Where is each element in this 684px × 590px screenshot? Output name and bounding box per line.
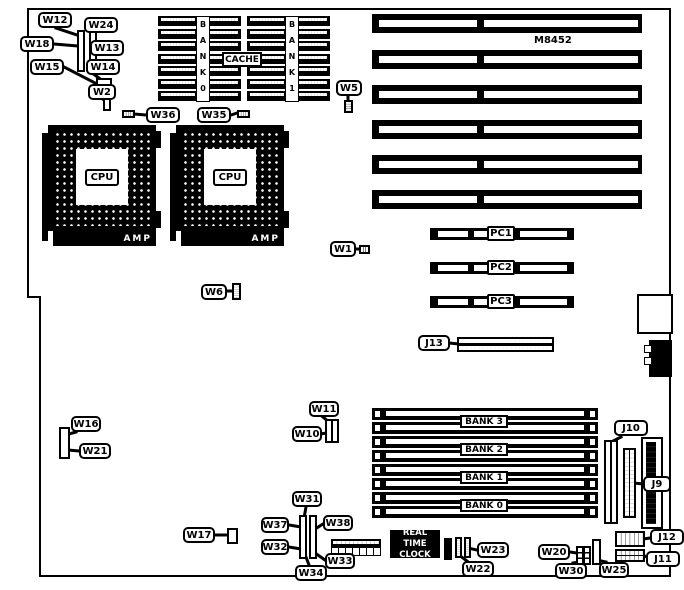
jumper-label-w13: W13 <box>90 40 124 56</box>
connector-j11 <box>615 549 645 562</box>
cpu-b-amp-bar: AMP <box>181 231 284 246</box>
connector-j13 <box>457 337 554 352</box>
cpu-socket-a-center: CPU <box>76 149 128 205</box>
cache-bank1-label: B A N K 1 <box>285 16 299 102</box>
bank-label-bank0: BANK 0 <box>460 499 508 512</box>
cpu-label: CPU <box>85 169 120 186</box>
cache-chip <box>158 91 198 101</box>
pc-slot-pc2: PC2 <box>430 262 574 274</box>
jumper-label-w10: W10 <box>292 426 322 442</box>
cpu-a-amp-bar: AMP <box>53 231 156 246</box>
pc2-label: PC2 <box>487 260 515 275</box>
jumper-block-w25 <box>592 539 601 565</box>
jumper-block-w10-w11 <box>325 419 339 443</box>
isa-slot-4 <box>372 120 642 139</box>
jumper-label-w24: W24 <box>84 17 118 33</box>
pc-slot-pc3: PC3 <box>430 296 574 308</box>
cpu-socket-b-center: CPU <box>204 149 256 205</box>
jumper-label-w36: W36 <box>146 107 180 123</box>
isa-slot-3 <box>372 85 642 104</box>
jumper-block-w31-group-left <box>299 515 307 559</box>
bank-label-bank3: BANK 3 <box>460 415 508 428</box>
isa-slot-5 <box>372 155 642 174</box>
jumper-label-w6: W6 <box>201 284 227 300</box>
jumper-block-w31-group-right <box>309 515 317 559</box>
isa-slot-1 <box>372 14 642 33</box>
jumper-label-w17: W17 <box>183 527 215 543</box>
jumper-block-w17 <box>227 528 238 544</box>
jumper-block-w5 <box>344 100 353 113</box>
cpu-b-tab-top <box>284 131 289 148</box>
cpu-socket-b: CPU <box>176 125 284 231</box>
cpu-socket-a: CPU <box>48 125 156 231</box>
jumper-label-w21: W21 <box>79 443 111 459</box>
jumper-label-w15: W15 <box>30 59 64 75</box>
connector-label-j13: J13 <box>418 335 450 351</box>
jumper-label-w32: W32 <box>261 539 289 555</box>
board-model-label: M8452 <box>534 35 572 46</box>
jumper-label-w2: W2 <box>88 84 116 100</box>
jumper-label-w35: W35 <box>197 107 231 123</box>
component-small <box>444 538 452 560</box>
connector-label-j11: J11 <box>646 551 680 567</box>
jumper-label-w33: W33 <box>325 553 355 569</box>
jumper-block-w22-w23-left <box>455 537 462 558</box>
connector-strip-top <box>331 539 381 547</box>
cache-chip <box>247 41 287 51</box>
connector-j9 <box>623 448 636 518</box>
jumper-label-w18: W18 <box>20 36 54 52</box>
pc-slot-pc1: PC1 <box>430 228 574 240</box>
bank-label-bank2: BANK 2 <box>460 443 508 456</box>
jumper-label-w30: W30 <box>555 563 587 579</box>
cache-chip <box>158 41 198 51</box>
jumper-label-w37: W37 <box>261 517 289 533</box>
jumper-block-w35 <box>237 110 250 118</box>
jumper-block-w16-w21 <box>59 427 70 459</box>
bank-label-bank1: BANK 1 <box>460 471 508 484</box>
jumper-label-w1: W1 <box>330 241 356 257</box>
rtc-chip: REAL TIME CLOCK <box>390 530 440 558</box>
jumper-label-w14: W14 <box>86 59 120 75</box>
jumper-label-w5: W5 <box>336 80 362 96</box>
cache-label: CACHE <box>222 52 262 67</box>
keyboard-connector-pin <box>644 357 652 365</box>
cache-chip <box>158 79 198 89</box>
pc1-label: PC1 <box>487 226 515 241</box>
jumper-label-w11: W11 <box>309 401 339 417</box>
cache-chip <box>247 79 287 89</box>
cpu-a-side-bar <box>42 133 48 241</box>
connector-j10 <box>604 440 618 524</box>
cache-chip <box>247 91 287 101</box>
connector-label-j12: J12 <box>650 529 684 545</box>
cache-chip <box>158 29 198 39</box>
cache-chip <box>247 29 287 39</box>
connector-label-j10: J10 <box>614 420 648 436</box>
jumper-label-w12: W12 <box>38 12 72 28</box>
cache-bank0-label: B A N K 0 <box>196 16 210 102</box>
cache-chip <box>158 16 198 26</box>
cache-chip <box>158 66 198 76</box>
jumper-label-w16: W16 <box>71 416 101 432</box>
jumper-block-w36 <box>122 110 135 118</box>
isa-slot-2 <box>372 50 642 69</box>
keyboard-connector-pin <box>644 345 652 353</box>
connector-label-j9: J9 <box>643 476 671 492</box>
cache-chip <box>247 16 287 26</box>
jumper-label-w31: W31 <box>292 491 322 507</box>
jumper-block-w22-w23-right <box>464 537 471 558</box>
jumper-block-w18 <box>77 30 85 72</box>
cpu-a-tab-bottom <box>156 211 161 228</box>
keyboard-connector <box>649 340 672 377</box>
cpu-label: CPU <box>213 169 248 186</box>
jumper-label-w23: W23 <box>477 542 509 558</box>
jumper-block-w6 <box>232 283 241 300</box>
pc3-label: PC3 <box>487 294 515 309</box>
cpu-a-tab-top <box>156 131 161 148</box>
connector-j6-outline <box>637 294 673 334</box>
connector-j12 <box>615 531 645 547</box>
jumper-label-w20: W20 <box>538 544 570 560</box>
jumper-block-w1 <box>359 245 370 254</box>
motherboard-diagram: W12 W24 W18 W13 W15 W14 W2 B A N K 0 B A… <box>0 0 684 590</box>
jumper-label-w38: W38 <box>323 515 353 531</box>
jumper-label-w22: W22 <box>462 561 494 577</box>
cache-chip <box>158 54 198 64</box>
jumper-label-w34: W34 <box>295 565 327 581</box>
cpu-b-tab-bottom <box>284 211 289 228</box>
cache-chip <box>247 66 287 76</box>
cpu-b-side-bar <box>170 133 176 241</box>
jumper-label-w25: W25 <box>599 562 629 578</box>
isa-slot-6 <box>372 190 642 209</box>
